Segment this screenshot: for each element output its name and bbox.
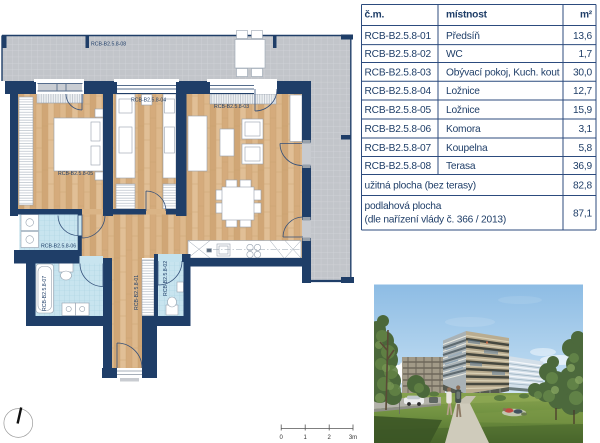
- svg-text:č.m.: č.m.: [365, 9, 385, 20]
- svg-text:Terasa: Terasa: [446, 161, 476, 172]
- svg-text:Předsíň: Předsíň: [446, 31, 480, 42]
- svg-text:m²: m²: [580, 9, 593, 20]
- svg-text:15,9: 15,9: [573, 105, 593, 116]
- svg-text:1,7: 1,7: [578, 49, 592, 60]
- svg-text:RCB-B2.5.8-05: RCB-B2.5.8-05: [365, 105, 432, 116]
- svg-text:Obývací pokoj, Kuch. kout: Obývací pokoj, Kuch. kout: [446, 68, 560, 79]
- svg-text:36,9: 36,9: [573, 161, 593, 172]
- svg-text:RCB-B2.5.8-04: RCB-B2.5.8-04: [365, 86, 432, 97]
- svg-text:12,7: 12,7: [573, 86, 593, 97]
- svg-text:5,8: 5,8: [578, 143, 592, 154]
- svg-text:30,0: 30,0: [573, 68, 593, 79]
- svg-text:Koupelna: Koupelna: [446, 143, 488, 154]
- svg-text:87,1: 87,1: [573, 208, 593, 219]
- svg-text:3,1: 3,1: [578, 124, 592, 135]
- svg-text:RCB-B2.5.8-02: RCB-B2.5.8-02: [365, 49, 432, 60]
- svg-text:Komora: Komora: [446, 124, 481, 135]
- svg-text:RCB-B2.5.8-07: RCB-B2.5.8-07: [365, 143, 432, 154]
- svg-text:RCB-B2.5.8-08: RCB-B2.5.8-08: [365, 161, 432, 172]
- svg-text:(dle nařízení vlády č. 366 / 2: (dle nařízení vlády č. 366 / 2013): [365, 215, 507, 226]
- svg-text:užitná plocha (bez terasy): užitná plocha (bez terasy): [365, 181, 476, 192]
- svg-text:Ložnice: Ložnice: [446, 86, 480, 97]
- svg-text:13,6: 13,6: [573, 31, 593, 42]
- svg-text:82,8: 82,8: [573, 181, 593, 192]
- svg-text:místnost: místnost: [446, 9, 488, 20]
- svg-text:Ložnice: Ložnice: [446, 105, 480, 116]
- svg-text:RCB-B2.5.8-03: RCB-B2.5.8-03: [365, 68, 432, 79]
- svg-text:podlahová plocha: podlahová plocha: [365, 201, 442, 212]
- svg-text:WC: WC: [446, 49, 463, 60]
- svg-text:RCB-B2.5.8-06: RCB-B2.5.8-06: [365, 124, 432, 135]
- svg-text:RCB-B2.5.8-01: RCB-B2.5.8-01: [365, 31, 432, 42]
